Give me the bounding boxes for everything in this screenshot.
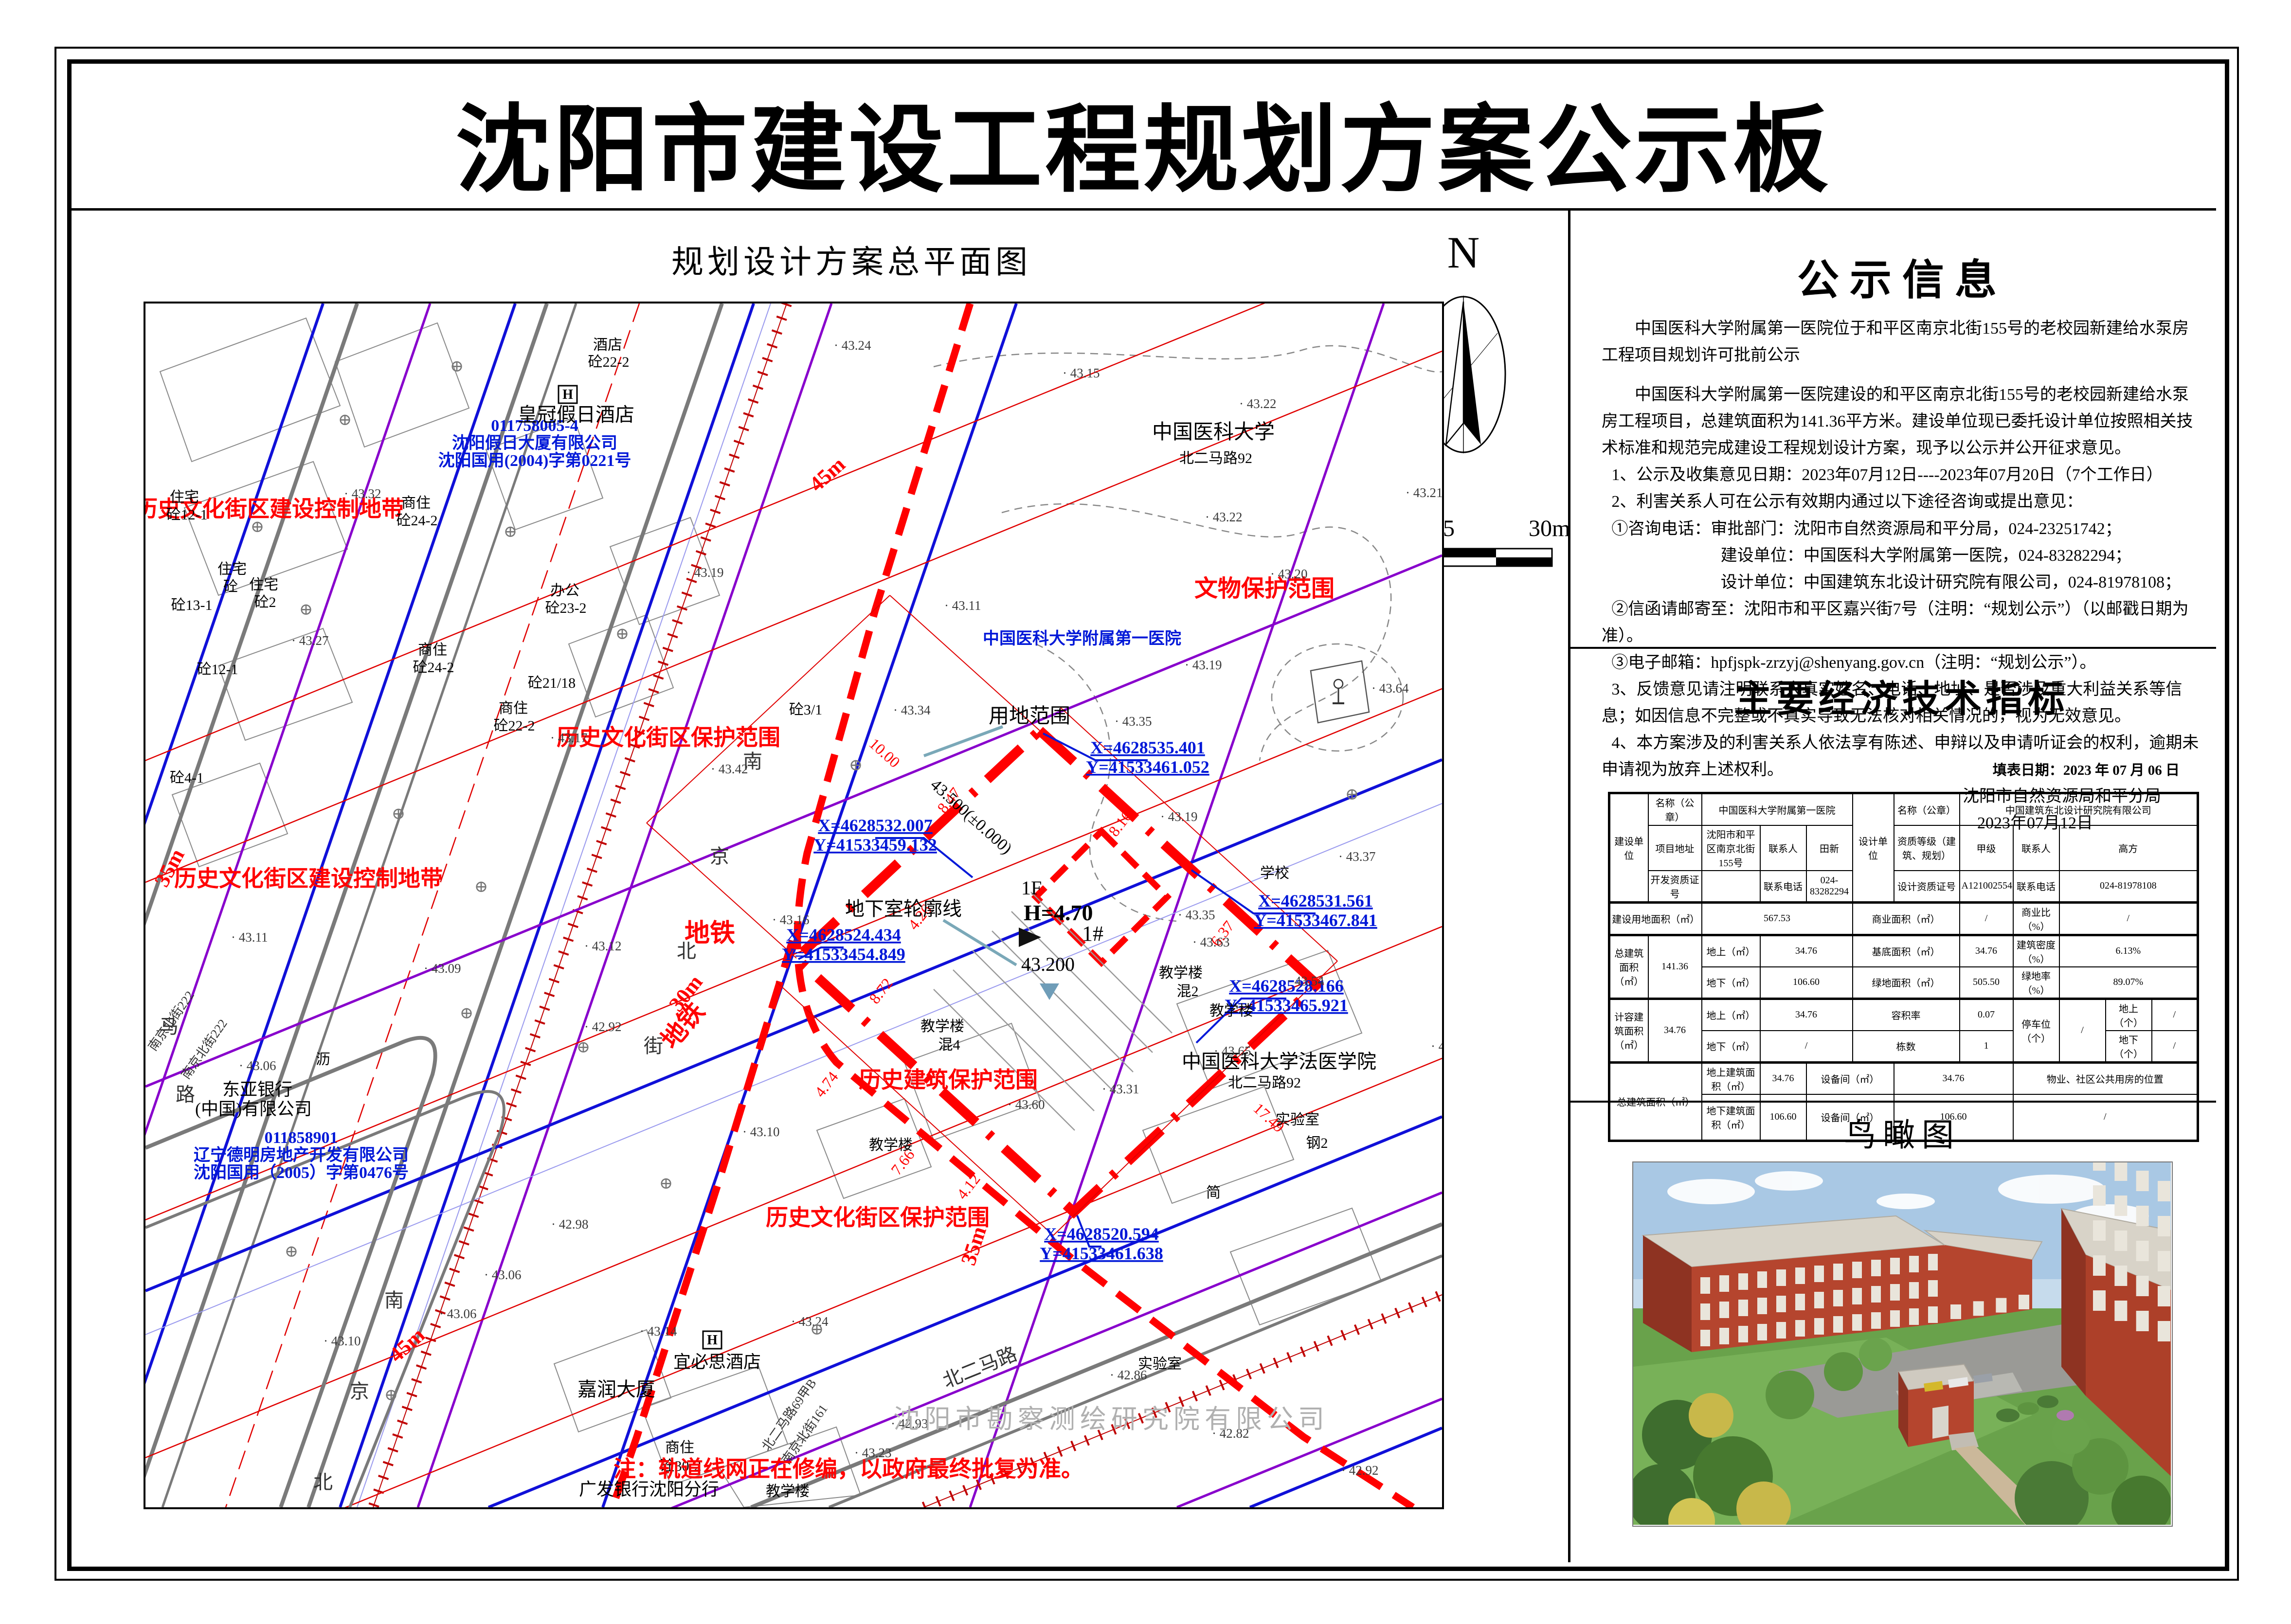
coordinate-y: Y=41533459.132 (813, 835, 937, 855)
elevation-label: · 43.14 (640, 1324, 677, 1338)
window (1738, 1300, 1748, 1316)
cell: 开发资质证号 (1648, 871, 1702, 903)
map-watermark: 沈阳市勘察测绘研究院有限公司 (893, 1405, 1329, 1434)
window (1871, 1312, 1881, 1329)
cell: 栋数 (1853, 1031, 1960, 1063)
cell: 34.76 (1648, 999, 1702, 1062)
notice-p2: 中国医科大学附属第一医院建设的和平区南京北街155号的老校园新建给水泵房工程项目… (1602, 381, 2205, 462)
elevation-label: · 43.22 (1205, 510, 1243, 524)
window (1738, 1326, 1748, 1342)
building-label: 酒店 (593, 337, 622, 353)
street-name-label: 南京北街222 (145, 988, 197, 1053)
building-label: 教学楼 (1209, 1003, 1253, 1019)
birdseye-image (1632, 1161, 2173, 1527)
window (2136, 1276, 2149, 1296)
parcel-cert-label: 沈阳国用(2004)字第0221号 (438, 451, 631, 470)
cell: 6.13% (2059, 935, 2198, 967)
building-label: 住宅 (217, 561, 247, 577)
cell: 34.76 (1760, 999, 1853, 1031)
notice-l6: ②信函请邮寄至：沈阳市和平区嘉兴街7号（注明：“规划公示”）（以邮戳日期为准）。 (1602, 596, 2205, 649)
building-label: 砼22-2 (588, 354, 630, 370)
window (1700, 1330, 1710, 1346)
cell: 绿地率（%） (2013, 967, 2059, 999)
street-name-label: 北 (313, 1471, 333, 1493)
notice-board: 沈阳市建设工程规划方案公示板 规划设计方案总平面图 N 0 15 30m (0, 0, 2291, 1624)
parcel-cert-label: 011858901 (264, 1129, 338, 1147)
survey-mark-icon: ⊕ (1345, 785, 1359, 803)
cell: 项目地址 (1648, 825, 1702, 871)
building-label: 砼3/1 (789, 702, 822, 718)
zone-label: 45m (805, 452, 850, 496)
cell: 名称（公章） (1648, 793, 1702, 825)
parcel-cert-label: 中国医科大学附属第一医院 (983, 629, 1181, 648)
coordinate-x: X=4628520.594 (1044, 1224, 1159, 1244)
zone-label: 历史文化街区保护范围 (766, 1205, 990, 1230)
elevation-label: · 43.37 (1338, 849, 1376, 864)
window (2114, 1231, 2127, 1251)
building-label: 砼2 (254, 594, 276, 610)
parcel-cert-label: 辽宁德明房地产开发有限公司 (194, 1146, 409, 1164)
window (1996, 1298, 2006, 1313)
dimension-label: 4.74 (811, 1068, 842, 1100)
cell: / (2059, 999, 2106, 1062)
building-label: 教学楼 (869, 1137, 913, 1153)
coordinate-x: X=4628528.166 (1229, 976, 1344, 996)
parcel-cert-label: 沈阳国用（2005）字第0476号 (194, 1163, 409, 1182)
street-name-label: 街 (644, 1035, 663, 1057)
table-row: 项目地址 沈阳市和平区南京北街155号 联系人 田新 资质等级（建筑、规划） 甲… (1609, 825, 2198, 871)
cell: 地上建筑面积（㎡） (1702, 1062, 1760, 1094)
elevation-label: · 42.92 (584, 1019, 622, 1034)
elevation-label: · 43.63 (1192, 935, 1230, 949)
building-label: 砼 (223, 579, 238, 595)
building-label: 北二马路92 (1228, 1075, 1301, 1091)
cell: 甲级 (1960, 825, 2013, 871)
building-label: 商住 (499, 700, 528, 716)
notice-p1: 中国医科大学附属第一医院位于和平区南京北街155号的老校园新建给水泵房工程项目规… (1602, 315, 2205, 369)
building-label: 中国医科大学法医学院 (1182, 1051, 1376, 1072)
dimension-label: 10.00 (866, 734, 904, 771)
parcel-cert-label: 沈阳假日大厦有限公司 (452, 434, 617, 452)
building-label: 钢2 (1306, 1135, 1328, 1151)
building-label: 教学楼 (920, 1018, 964, 1035)
table-row: 建设用地面积（㎡） 567.53 商业面积（㎡） / 商业比（%） / (1609, 902, 2198, 935)
window (2114, 1162, 2127, 1181)
window (1814, 1266, 1824, 1282)
elevation-label: · 43.11 (944, 598, 981, 613)
street-name-label: 京 (350, 1380, 369, 1402)
dimension-lines (647, 595, 1337, 1235)
survey-mark-icon: ⊕ (384, 1386, 398, 1404)
elevation-label: · 43.27 (291, 633, 329, 648)
window (2136, 1311, 2149, 1331)
cell: / (1760, 1031, 1853, 1063)
birdseye-render (1633, 1162, 2171, 1525)
elevation-label: · 43.10 (324, 1334, 361, 1348)
site-elevation: 43.200 (1021, 953, 1075, 975)
hotel-h-icon: H (562, 387, 573, 402)
cell: 141.36 (1648, 935, 1702, 999)
cell: 106.60 (1760, 967, 1853, 999)
building-label: 混4 (938, 1037, 960, 1053)
window (1833, 1264, 1843, 1280)
cell: 联系电话 (2013, 871, 2059, 903)
elevation-label: · 43.19 (1160, 809, 1198, 824)
window (1909, 1256, 1919, 1272)
cell: / (2152, 999, 2198, 1031)
elevation-label: · 43.31 (1102, 1082, 1139, 1096)
window (1776, 1269, 1786, 1286)
cell: 建筑密度（%） (2013, 935, 2059, 967)
cell: 容积率 (1853, 999, 1960, 1031)
elevation-label: · 43.20 (1270, 567, 1308, 581)
elevation-label: · 43.06 (439, 1306, 477, 1321)
window (1852, 1288, 1862, 1304)
building-label: 商住 (665, 1440, 694, 1456)
window (2136, 1206, 2149, 1226)
window (2093, 1290, 2106, 1311)
notice-l2: 2、利害关系人可在公示有效期内通过以下途径咨询或提出意见： (1602, 488, 2205, 515)
dimension-label: 8.72 (866, 975, 896, 1007)
cell: 物业、社区公共用房的位置 (2013, 1062, 2198, 1094)
map-note: 注：轨道线网正在修编，以政府最终批复为准。 (613, 1457, 1083, 1481)
elevation-label: · 43.06 (239, 1058, 276, 1073)
hotel-h-icon: H (707, 1333, 718, 1348)
cell (1702, 871, 1760, 903)
table-row: 开发资质证号 联系电话 024-83282294 设计资质证号 A1210025… (1609, 871, 2198, 903)
elevation-label: · 43.19 (1185, 658, 1222, 672)
coordinate-x: X=4628532.007 (818, 816, 933, 835)
elevation-label: · 43.15 (1063, 366, 1100, 380)
elevation-label: · 43.12 (584, 939, 622, 953)
window (1871, 1286, 1881, 1303)
notice-l4: 建设单位：中国医科大学附属第一医院，024-83282294； (1602, 542, 2205, 569)
building-label: 砼23-2 (545, 600, 587, 616)
survey-mark-icon: ⊕ (460, 1004, 474, 1022)
window (1776, 1322, 1786, 1338)
elevation-label: · 43.54 (1287, 974, 1324, 988)
survey-mark-icon: ⊕ (338, 411, 352, 429)
elevation-label: · 42.92 (1341, 1463, 1379, 1478)
cell: 总建筑面积（㎡） (1609, 935, 1648, 999)
window (1700, 1277, 1710, 1294)
cell: 0.07 (1960, 999, 2013, 1031)
building-label: 砼22-2 (494, 718, 535, 734)
window (1973, 1301, 1984, 1316)
window (2093, 1255, 2106, 1276)
window (1890, 1284, 1900, 1301)
site-boundary (647, 595, 1337, 1235)
cell: 567.53 (1702, 902, 1853, 935)
window (1890, 1258, 1900, 1274)
zone-label: 历史文化街区保护范围 (557, 725, 780, 750)
street-name-label: 南 (384, 1289, 404, 1311)
cell: 1 (1960, 1031, 2013, 1063)
window (1833, 1316, 1843, 1333)
cell: 024-83282294 (1806, 871, 1853, 903)
window (2136, 1241, 2149, 1261)
indicators-title: 主要经济技术指标 (1606, 669, 2199, 722)
table-row: 总建筑面积（㎡） 141.36 地上（㎡） 34.76 基底面积（㎡） 34.7… (1609, 935, 2198, 967)
window (1738, 1273, 1748, 1290)
site-floor: 1F (1021, 877, 1042, 899)
cell: 34.76 (1760, 1062, 1806, 1094)
cell: / (2152, 1031, 2198, 1063)
cell: 设计资质证号 (1894, 871, 1960, 903)
building-label: 砼24-2 (413, 660, 454, 676)
cell: 建设单位 (1609, 793, 1648, 903)
survey-mark-icon: ⊕ (504, 523, 518, 541)
elevation-label: · 43.34 (893, 703, 931, 717)
cell: 田新 (1806, 825, 1853, 871)
window (1795, 1294, 1805, 1310)
survey-mark-icon: ⊕ (392, 805, 406, 823)
map-title: 规划设计方案总平面图 (535, 236, 1168, 283)
window (1950, 1304, 1961, 1319)
window (2019, 1295, 2029, 1309)
window (1776, 1296, 1786, 1312)
survey-mark-icon: ⊕ (849, 756, 863, 774)
elevation-label: · 43.16 (772, 912, 810, 927)
window (1928, 1306, 1938, 1323)
coordinate-y: Y=41533461.052 (1086, 757, 1209, 777)
building-label: 沥 (316, 1052, 330, 1068)
elevation-label: · 43.35 (1178, 908, 1215, 922)
cell: 联系人 (1760, 825, 1806, 871)
zone-label: 历史建筑保护范围 (859, 1068, 1038, 1092)
cell: 89.07% (2059, 967, 2198, 999)
building-label: 商住 (401, 495, 431, 511)
window (2093, 1220, 2106, 1241)
building-label: 学校 (1260, 865, 1289, 881)
table-row: 建设单位 名称（公章） 中国医科大学附属第一医院 设计单位 名称（公章） 中国建… (1609, 793, 2198, 825)
cell: / (1960, 902, 2013, 935)
cell: 停车位（个） (2013, 999, 2059, 1062)
elevation-label: · 43.64 (1371, 681, 1409, 696)
elevation-label: · 43.10 (742, 1124, 780, 1139)
elevation-label: · 43.06 (484, 1267, 522, 1282)
window (1814, 1318, 1824, 1335)
table-row: 计容建筑面积（㎡） 34.76 地上（㎡） 34.76 容积率 0.07 停车位… (1609, 999, 2198, 1031)
coordinate-y: Y=41533454.849 (782, 945, 905, 964)
fill-date: 填表日期：2023 年 07 月 06 日 (1606, 759, 2180, 779)
survey-mark-icon: ⊕ (251, 518, 265, 536)
elevation-label: · 43.17 (550, 731, 588, 745)
cell: 基底面积（㎡） (1853, 935, 1960, 967)
building-label: 实验室 (1276, 1112, 1319, 1128)
window (2114, 1196, 2127, 1216)
cell: 505.50 (1960, 967, 2013, 999)
window (2158, 1321, 2170, 1341)
elevation-label: · 43.11 (231, 930, 268, 945)
cell: 34.76 (1960, 935, 2013, 967)
window (2114, 1301, 2127, 1321)
north-needle-outline (1446, 302, 1463, 445)
elevation-label: · 43.21 (1406, 485, 1442, 500)
building-label: 皇冠假日酒店 (518, 404, 634, 426)
site-plan-map: 历史文化街区建设控制地带历史文化街区建设控制地带历史文化街区保护范围历史文化街区… (144, 302, 1444, 1509)
window (2158, 1286, 2170, 1306)
survey-mark-icon: ⊕ (450, 357, 464, 375)
window (1757, 1271, 1767, 1288)
site-extent-callout: 用地范围 (989, 705, 1070, 728)
cell: A121002554 (1960, 871, 2013, 903)
building-label: 砼12-1 (197, 661, 238, 678)
elevation-label: · 43.35 (1115, 714, 1152, 729)
cell: 绿地面积（㎡） (1853, 967, 1960, 999)
map-canvas: 历史文化街区建设控制地带历史文化街区建设控制地带历史文化街区保护范围历史文化街区… (145, 303, 1442, 1507)
cell: 设计单位 (1853, 793, 1894, 903)
cell: 资质等级（建筑、规划） (1894, 825, 1960, 871)
site-number: 1# (1082, 922, 1103, 946)
zone-label: 35m (956, 1224, 991, 1268)
street-name-label: 京 (710, 845, 729, 867)
building-label: 砼4-1 (170, 770, 204, 786)
survey-mark-icon: ⊕ (299, 601, 313, 619)
window (1719, 1328, 1729, 1344)
cell: / (2059, 902, 2198, 935)
survey-mark-icon: ⊕ (577, 1038, 591, 1056)
building-label: 东亚银行 (222, 1080, 292, 1099)
cell: 中国医科大学附属第一医院 (1702, 793, 1853, 825)
north-label: N (1447, 228, 1479, 277)
elevation-label: · 43.24 (834, 338, 871, 353)
coordinate-y: Y=41533467.841 (1254, 910, 1377, 930)
monument (1311, 661, 1369, 723)
building-label: 砼13-1 (171, 597, 213, 613)
elevation-label: · 43.60 (1008, 1097, 1045, 1112)
building-label: (中国)有限公司 (195, 1099, 312, 1119)
window (2158, 1181, 2170, 1201)
scale-30m: 30m (1529, 516, 1570, 541)
window (1719, 1302, 1729, 1318)
coordinate-x: X=4628524.434 (786, 925, 901, 945)
survey-mark-icon: ⊕ (285, 1243, 299, 1261)
cell: 34.76 (1760, 935, 1853, 967)
coordinate-x: X=4628535.401 (1090, 738, 1205, 757)
window (1795, 1320, 1805, 1337)
window (1852, 1314, 1862, 1331)
notice-l3: ①咨询电话：审批部门：沈阳市自然资源局和平分局，024-23251742； (1602, 516, 2205, 542)
cell: 建设用地面积（㎡） (1609, 902, 1702, 935)
cell: 地上（个） (2106, 999, 2152, 1031)
cell: 联系电话 (1760, 871, 1806, 903)
map-roads-family-a (145, 303, 1384, 1507)
building-label: 教学楼 (766, 1483, 810, 1499)
cell: 地上（㎡） (1702, 999, 1760, 1031)
cell: 中国建筑东北设计研究院有限公司 (1960, 793, 2198, 825)
title-divider (72, 208, 2216, 211)
building-label: 简 (1206, 1185, 1221, 1201)
cell: 联系人 (2013, 825, 2059, 871)
cell: 计容建筑面积（㎡） (1609, 999, 1648, 1062)
elevation-label: · 43.38 (1431, 1039, 1442, 1053)
cell: 名称（公章） (1894, 793, 1960, 825)
cell: 设备间（㎡） (1806, 1062, 1894, 1094)
coordinate-x: X=4628531.561 (1258, 891, 1373, 910)
cell: 沈阳市和平区南京北街155号 (1702, 825, 1760, 871)
building-label: 北二马路92 (1179, 450, 1252, 466)
window (1928, 1280, 1938, 1297)
page-title: 沈阳市建设工程规划方案公示板 (68, 73, 2219, 211)
building-label: 砼21/18 (528, 675, 576, 691)
north-needle-icon (1463, 302, 1481, 445)
window (1833, 1290, 1843, 1306)
birdseye-title: 鸟瞰图 (1606, 1109, 2199, 1156)
window (1814, 1292, 1824, 1308)
window (2136, 1171, 2149, 1191)
window (1909, 1308, 1919, 1325)
survey-mark-icon: ⊕ (474, 878, 488, 896)
building-label: 砼12-1 (166, 507, 208, 523)
elevation-triangle-icon (1040, 983, 1059, 1000)
window (2093, 1185, 2106, 1206)
elevation-label: · 43.65 (1214, 1044, 1251, 1058)
elevation-label: · 42.98 (551, 1217, 589, 1231)
street-name-label: 北二马路 (939, 1343, 1020, 1392)
cell: 商业面积（㎡） (1853, 902, 1960, 935)
cell: 商业比（%） (2013, 902, 2059, 935)
cell: 地上（㎡） (1702, 935, 1760, 967)
survey-mark-icon: ⊕ (659, 1175, 673, 1193)
notice-l5: 设计单位：中国建筑东北设计研究院有限公司，024-81978108； (1602, 569, 2205, 596)
window (1757, 1324, 1767, 1340)
notice-l1: 1、公示及收集意见日期：2023年07月12日----2023年07月20日（7… (1602, 462, 2205, 488)
zone-label: 历史文化街区建设控制地带 (174, 866, 443, 891)
elevation-label: · 43.09 (424, 961, 461, 976)
elevation-label: · 43.22 (1239, 396, 1277, 411)
cell: 地下（㎡） (1702, 967, 1760, 999)
window (1852, 1262, 1862, 1278)
building-label: 嘉润大厦 (577, 1378, 655, 1400)
elevation-label: · 43.32 (344, 486, 381, 501)
building-label: 广发银行沈阳分行 (579, 1480, 719, 1499)
building-label: 教学楼 (1159, 965, 1203, 981)
building-label: 住宅 (249, 577, 278, 593)
basement-outline-callout: 地下室轮廓线 (845, 898, 962, 920)
table-row: 总建筑面积（㎡） 地上建筑面积（㎡） 34.76 设备间（㎡） 34.76 物业… (1609, 1062, 2198, 1094)
notice-title: 公示信息 (1606, 246, 2199, 306)
window (2114, 1266, 2127, 1286)
cell: 024-81978108 (2059, 871, 2198, 903)
building-label: 办公 (550, 583, 579, 599)
street-name-label: 南 (743, 750, 762, 772)
window (1719, 1275, 1729, 1292)
building-label: 住宅 (170, 489, 199, 505)
building-label: 砼24-2 (397, 513, 438, 529)
building-label: 商住 (418, 642, 447, 658)
coordinate-y: Y=41533461.638 (1040, 1244, 1163, 1263)
street-name-label: 南京北街222 (179, 1017, 230, 1082)
window (1909, 1282, 1919, 1299)
window (1890, 1310, 1900, 1327)
dimension-label: 4.12 (953, 1170, 984, 1202)
window (2158, 1216, 2170, 1236)
elevation-label: · 42.86 (1110, 1368, 1147, 1382)
street-name-label: 路 (176, 1084, 195, 1106)
window (1928, 1254, 1938, 1270)
building-label: 混2 (1177, 983, 1199, 999)
elevation-label: · 43.19 (686, 565, 724, 580)
window (2093, 1162, 2106, 1171)
building-label: 宜必思酒店 (673, 1352, 761, 1372)
cell: 34.76 (1894, 1062, 2013, 1094)
window (1795, 1267, 1805, 1284)
building-label: 43.500(±0.000) (927, 776, 1015, 858)
cell: 高方 (2059, 825, 2198, 871)
window (1700, 1303, 1710, 1320)
window (1757, 1298, 1767, 1314)
